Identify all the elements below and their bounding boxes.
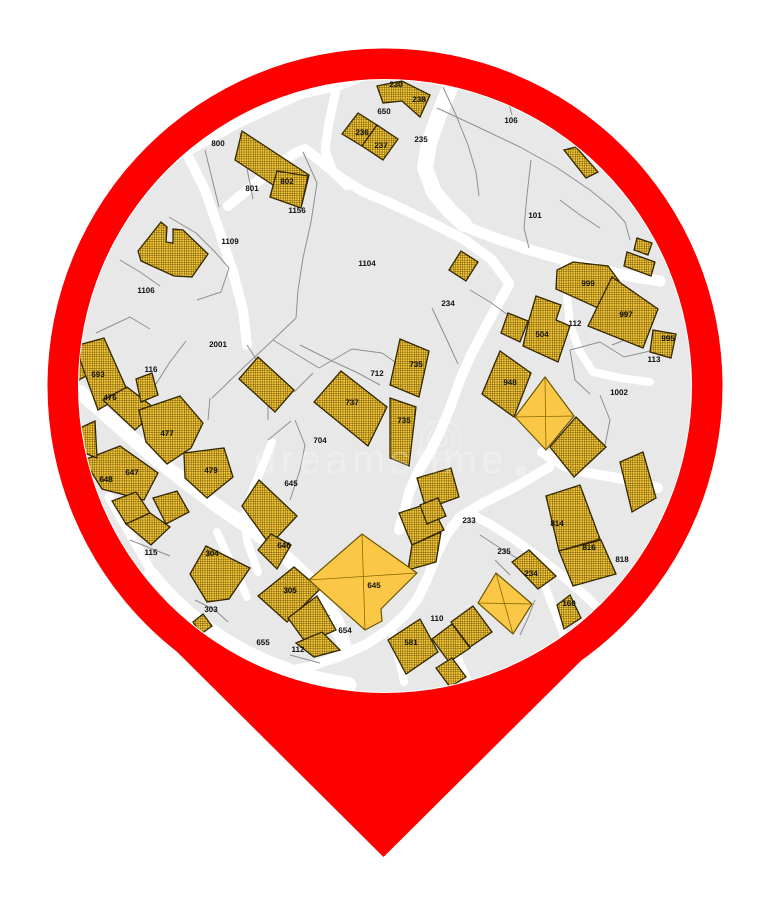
- svg-text:238: 238: [412, 95, 426, 104]
- svg-text:112: 112: [569, 319, 582, 328]
- svg-text:305: 305: [283, 586, 297, 595]
- svg-text:997: 997: [619, 310, 633, 319]
- svg-text:801: 801: [245, 184, 259, 193]
- svg-text:802: 802: [280, 177, 294, 186]
- svg-text:647: 647: [125, 468, 139, 477]
- svg-text:2001: 2001: [209, 340, 227, 349]
- svg-text:233: 233: [462, 516, 476, 525]
- svg-text:235: 235: [497, 547, 511, 556]
- svg-text:1104: 1104: [358, 259, 376, 268]
- svg-text:645: 645: [367, 581, 381, 590]
- svg-text:655: 655: [256, 638, 270, 647]
- svg-text:234: 234: [441, 299, 455, 308]
- svg-text:648: 648: [99, 475, 113, 484]
- svg-text:654: 654: [338, 626, 352, 635]
- svg-text:dreamstime: dreamstime: [254, 438, 508, 482]
- svg-text:235: 235: [414, 135, 428, 144]
- svg-text:304: 304: [205, 549, 219, 558]
- svg-text:816: 816: [582, 543, 596, 552]
- svg-text:504: 504: [535, 330, 549, 339]
- svg-text:693: 693: [91, 370, 105, 379]
- svg-text:1156: 1156: [288, 206, 306, 215]
- svg-text:581: 581: [404, 638, 418, 647]
- svg-text:112: 112: [292, 645, 305, 654]
- svg-text:237: 237: [374, 141, 388, 150]
- svg-text:476: 476: [103, 393, 117, 402]
- svg-text:116: 116: [145, 365, 158, 374]
- svg-text:712: 712: [370, 369, 384, 378]
- svg-text:115: 115: [145, 548, 158, 557]
- svg-text:110: 110: [431, 614, 444, 623]
- svg-text:160: 160: [562, 599, 576, 608]
- svg-text:948: 948: [503, 378, 517, 387]
- svg-text:1002: 1002: [610, 388, 628, 397]
- svg-text:995: 995: [661, 334, 675, 343]
- svg-text:236: 236: [355, 128, 369, 137]
- svg-text:234: 234: [524, 569, 538, 578]
- svg-text:999: 999: [581, 279, 595, 288]
- svg-text:737: 737: [345, 398, 359, 407]
- svg-text:113: 113: [648, 355, 661, 364]
- svg-text:477: 477: [160, 429, 174, 438]
- svg-text:818: 818: [615, 555, 629, 564]
- svg-text:814: 814: [550, 519, 564, 528]
- svg-text:650: 650: [377, 107, 391, 116]
- svg-text:735: 735: [397, 416, 411, 425]
- svg-text:1109: 1109: [221, 237, 239, 246]
- svg-text:106: 106: [504, 116, 518, 125]
- svg-text:735: 735: [409, 360, 423, 369]
- svg-text:303: 303: [204, 605, 218, 614]
- svg-text:101: 101: [528, 211, 542, 220]
- svg-text:230: 230: [389, 80, 403, 89]
- svg-text:1106: 1106: [137, 286, 155, 295]
- svg-text:479: 479: [204, 466, 218, 475]
- svg-text:800: 800: [211, 139, 225, 148]
- svg-text:646: 646: [277, 541, 291, 550]
